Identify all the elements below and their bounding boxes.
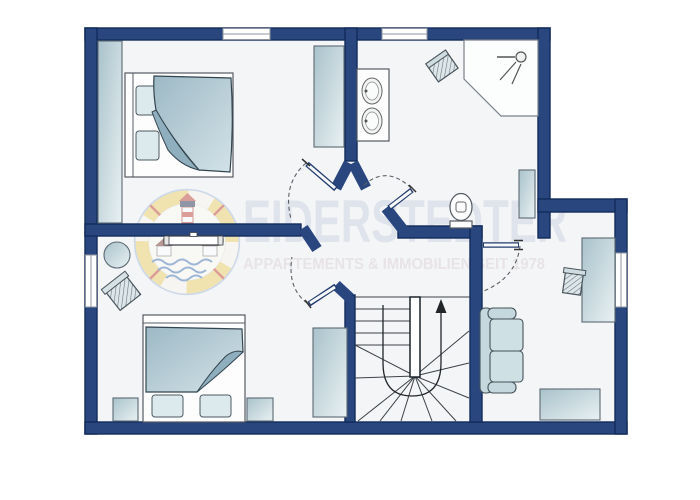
- pillow: [152, 395, 183, 417]
- watermark-tagline-text: APPARTEMENTS & IMMOBILIEN SEIT 1978: [243, 256, 545, 273]
- wall-right: [615, 199, 627, 434]
- pillow: [200, 395, 231, 417]
- wardrobe-bedroom1: [314, 46, 344, 147]
- wardrobe-bedroom2: [313, 328, 347, 417]
- wall-study-top: [538, 199, 627, 212]
- window-top-bathroom: [382, 29, 427, 40]
- window-right-study: [616, 253, 627, 307]
- double-sink-vanity: [357, 69, 389, 141]
- round-table: [104, 242, 130, 268]
- double-bed-bedroom1: [125, 73, 233, 177]
- window-top-left: [223, 29, 270, 40]
- window-left-bedroom2: [86, 255, 97, 307]
- radiator-bathroom: [519, 170, 535, 218]
- sofa: [480, 308, 523, 393]
- pillow: [136, 131, 159, 160]
- floor-plan-svg: EIDERSTEDTER APPARTEMENTS & IMMOBILIEN S…: [0, 0, 700, 500]
- sideboard: [540, 389, 600, 420]
- closet-strip: [98, 41, 122, 223]
- double-bed-bedroom2: [143, 315, 245, 422]
- floor-plan-page: EIDERSTEDTER APPARTEMENTS & IMMOBILIEN S…: [0, 0, 700, 500]
- wall-top: [85, 28, 550, 40]
- nightstand-left: [113, 398, 138, 421]
- stair-spine: [410, 297, 420, 377]
- wall-bottom: [85, 422, 627, 434]
- nightstand-right: [247, 398, 273, 421]
- toilet: [450, 194, 472, 229]
- desk: [582, 238, 615, 322]
- wall-bed1-bath-divider: [345, 28, 357, 161]
- shower-head-icon: [516, 52, 526, 62]
